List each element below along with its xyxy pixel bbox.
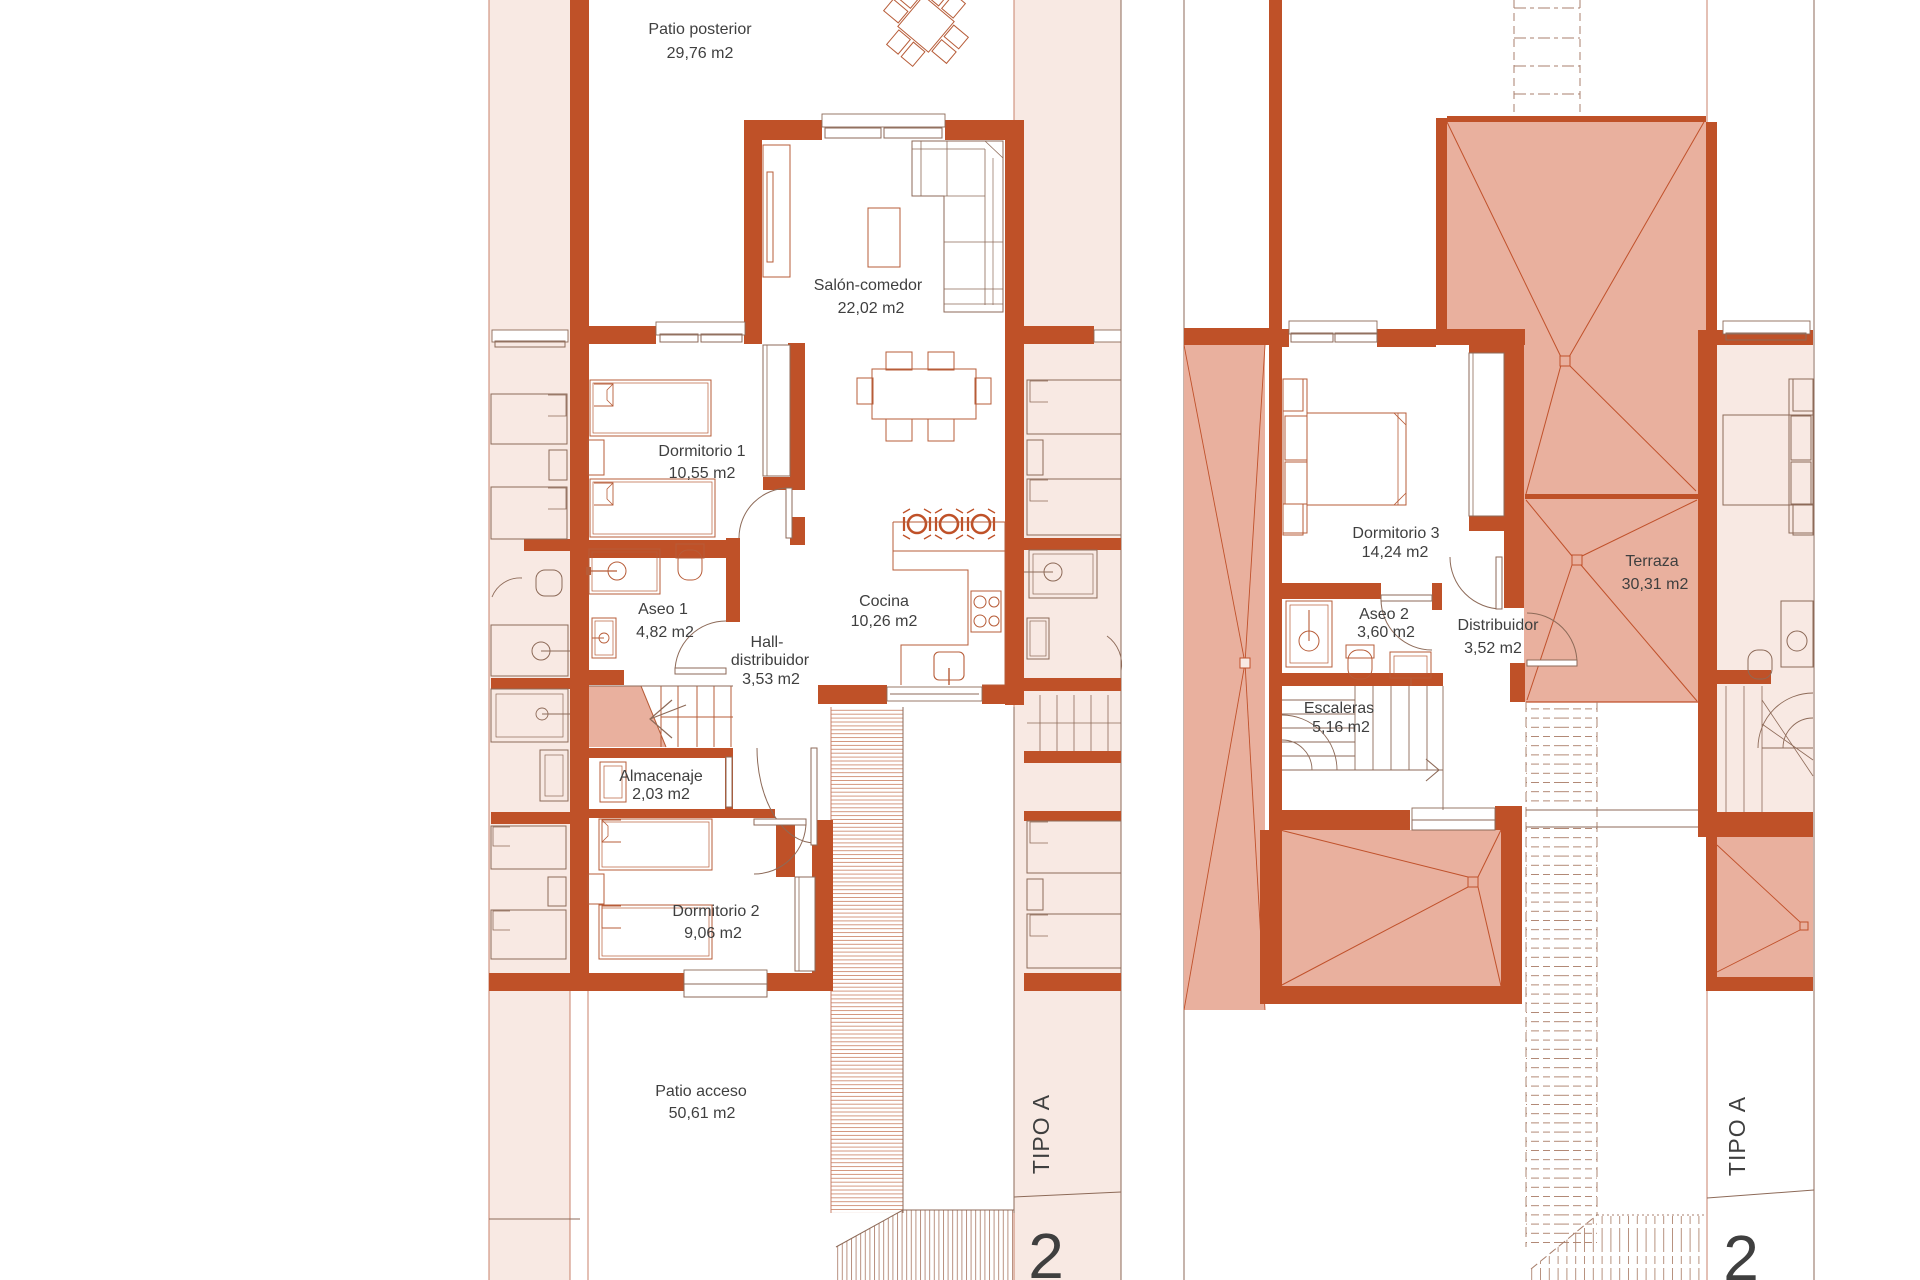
svg-text:TIPO A: TIPO A	[1028, 1094, 1054, 1174]
svg-text:TIPO A: TIPO A	[1724, 1096, 1750, 1176]
svg-text:Dormitorio 1: Dormitorio 1	[658, 443, 745, 460]
svg-text:50,61 m2: 50,61 m2	[669, 1105, 736, 1122]
svg-text:Dormitorio 3: Dormitorio 3	[1352, 525, 1439, 542]
svg-text:Hall-: Hall-	[751, 634, 784, 651]
svg-text:14,24 m2: 14,24 m2	[1362, 544, 1429, 561]
svg-text:Escaleras: Escaleras	[1304, 700, 1374, 717]
svg-text:3,52 m2: 3,52 m2	[1464, 640, 1522, 657]
svg-text:30,31 m2: 30,31 m2	[1622, 576, 1689, 593]
svg-text:Dormitorio 2: Dormitorio 2	[672, 903, 759, 920]
svg-text:Distribuidor: Distribuidor	[1458, 617, 1540, 634]
svg-text:Salón-comedor: Salón-comedor	[814, 277, 923, 294]
svg-text:29,76 m2: 29,76 m2	[667, 45, 734, 62]
svg-text:Almacenaje: Almacenaje	[619, 768, 703, 785]
svg-text:Patio acceso: Patio acceso	[655, 1083, 747, 1100]
svg-text:3,60 m2: 3,60 m2	[1357, 624, 1415, 641]
svg-text:22,02 m2: 22,02 m2	[838, 300, 905, 317]
svg-text:3,53 m2: 3,53 m2	[742, 671, 800, 688]
svg-text:2: 2	[1723, 1222, 1759, 1280]
svg-text:2,03 m2: 2,03 m2	[632, 786, 690, 803]
svg-text:Aseo 2: Aseo 2	[1359, 606, 1409, 623]
svg-text:10,55 m2: 10,55 m2	[669, 465, 736, 482]
svg-text:Aseo 1: Aseo 1	[638, 601, 688, 618]
svg-text:10,26 m2: 10,26 m2	[851, 613, 918, 630]
svg-text:Patio posterior: Patio posterior	[648, 21, 752, 38]
svg-text:9,06 m2: 9,06 m2	[684, 925, 742, 942]
svg-text:2: 2	[1028, 1220, 1064, 1280]
svg-text:Cocina: Cocina	[859, 593, 909, 610]
svg-text:5,16 m2: 5,16 m2	[1312, 719, 1370, 736]
svg-text:Terraza: Terraza	[1625, 553, 1678, 570]
svg-text:distribuidor: distribuidor	[731, 652, 810, 669]
svg-text:4,82 m2: 4,82 m2	[636, 624, 694, 641]
